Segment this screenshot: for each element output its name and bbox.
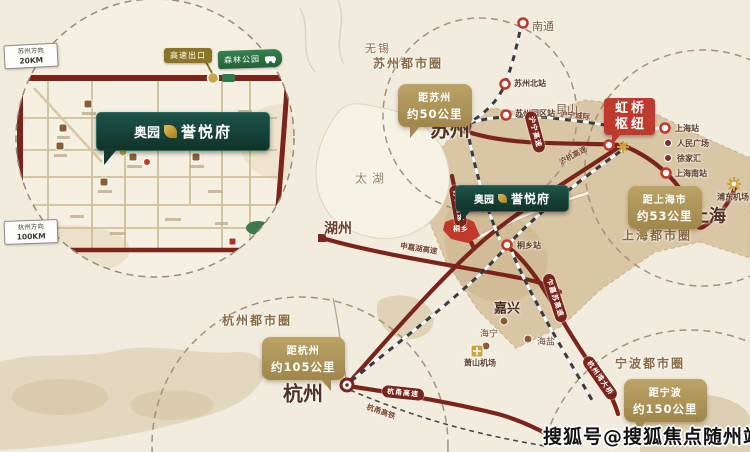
inset-park-banner: 森林公园 <box>218 49 283 69</box>
inset-sign-top: 苏州方向 20KM <box>3 43 58 70</box>
watermark: 搜狐号@搜狐焦点随州站 <box>543 422 750 449</box>
town-label-haining: 海宁 <box>480 327 498 340</box>
poi-label-pudong-airport: 浦东机场 <box>717 192 749 203</box>
car-icon <box>265 56 276 61</box>
lake-label-taihu: 太湖 <box>355 170 389 187</box>
poi-label-xujiahui: 徐家汇 <box>677 153 701 164</box>
inset-project-name: 誉悦府 <box>181 121 232 142</box>
poi-dot-xujiahui <box>665 155 672 162</box>
station-dot-tongxiang <box>503 241 512 250</box>
city-label-nantong: 南通 <box>532 18 554 34</box>
inset-junction-bottom <box>273 246 281 254</box>
callout-tail <box>410 125 421 138</box>
station-label-suzhou-north: 苏州北站 <box>514 78 546 89</box>
hub-box-tail <box>612 134 621 145</box>
callout-tail <box>320 378 331 391</box>
metro-label-ningbo: 宁波都市圈 <box>615 355 685 372</box>
city-label-jiaxing: 嘉兴 <box>494 298 520 317</box>
metro-label-hangzhou: 杭州都市圈 <box>222 312 292 329</box>
region-traffic-map: 无锡 南通 昆山 太湖 湖州 苏州 上海 嘉兴 海宁 海盐 杭州 苏州都市圈 上… <box>0 0 750 452</box>
inset-junction-left <box>16 74 24 82</box>
poi-label-peoples-square: 人民广场 <box>677 138 709 149</box>
callout-distance-suzhou: 距苏州 约50公里 <box>398 84 472 127</box>
callout-distance-shanghai: 距上海市 约53公里 <box>628 186 702 229</box>
xiaoshan-airport-icon <box>471 345 483 357</box>
town-dot-jiaxing <box>500 317 508 325</box>
town-dot-haiyan <box>524 335 532 343</box>
pudong-airport-icon <box>727 177 741 191</box>
callout-tail <box>640 227 651 240</box>
inset-junction-exit <box>208 73 219 84</box>
station-label-tongxiang: 桐乡站 <box>517 240 541 251</box>
project-badge: 奥园 誉悦府 <box>455 185 569 212</box>
station-dot-nantong <box>519 19 528 28</box>
town-label-haiyan: 海盐 <box>537 335 555 348</box>
project-brand: 奥园 <box>474 191 494 206</box>
poi-label-xiaoshan-airport: 萧山机场 <box>464 358 496 369</box>
callout-distance-hangzhou: 距杭州 约105公里 <box>262 337 345 380</box>
city-label-hangzhou: 杭州 <box>283 378 323 407</box>
metro-label-shanghai: 上海都市圈 <box>622 227 692 244</box>
hongqiao-hub-box: 虹桥 枢纽 <box>604 98 655 135</box>
station-label-shanghai: 上海站 <box>675 123 699 134</box>
project-badge-tail <box>461 209 472 222</box>
inset-logo-leaf-icon <box>164 125 177 138</box>
station-dot-suzhou-north <box>501 80 510 89</box>
station-dot-suzhou-park <box>502 111 511 120</box>
city-label-huzhou: 湖州 <box>324 218 352 238</box>
metro-label-suzhou: 苏州都市圈 <box>373 55 443 72</box>
station-label-shanghai-south: 上海南站 <box>675 168 707 179</box>
inset-exit-badge: 高速出口 <box>164 48 212 63</box>
station-dot-shanghai-south <box>662 169 671 178</box>
inset-park-tag <box>222 74 235 82</box>
poi-dot-peoples-square <box>665 140 672 147</box>
station-dot-shanghai <box>661 124 670 133</box>
inset-badge-tail <box>104 148 118 165</box>
project-name: 誉悦府 <box>511 190 550 207</box>
inset-project-badge: 奥园 誉悦府 <box>96 112 270 151</box>
inset-sign-bottom: 杭州方向 100KM <box>4 219 59 245</box>
project-logo-leaf-icon <box>498 194 507 203</box>
project-site-label: 桐乡 <box>453 224 469 234</box>
inset-project-brand: 奥园 <box>134 122 160 141</box>
callout-distance-ningbo: 距宁波 约150公里 <box>624 379 707 422</box>
